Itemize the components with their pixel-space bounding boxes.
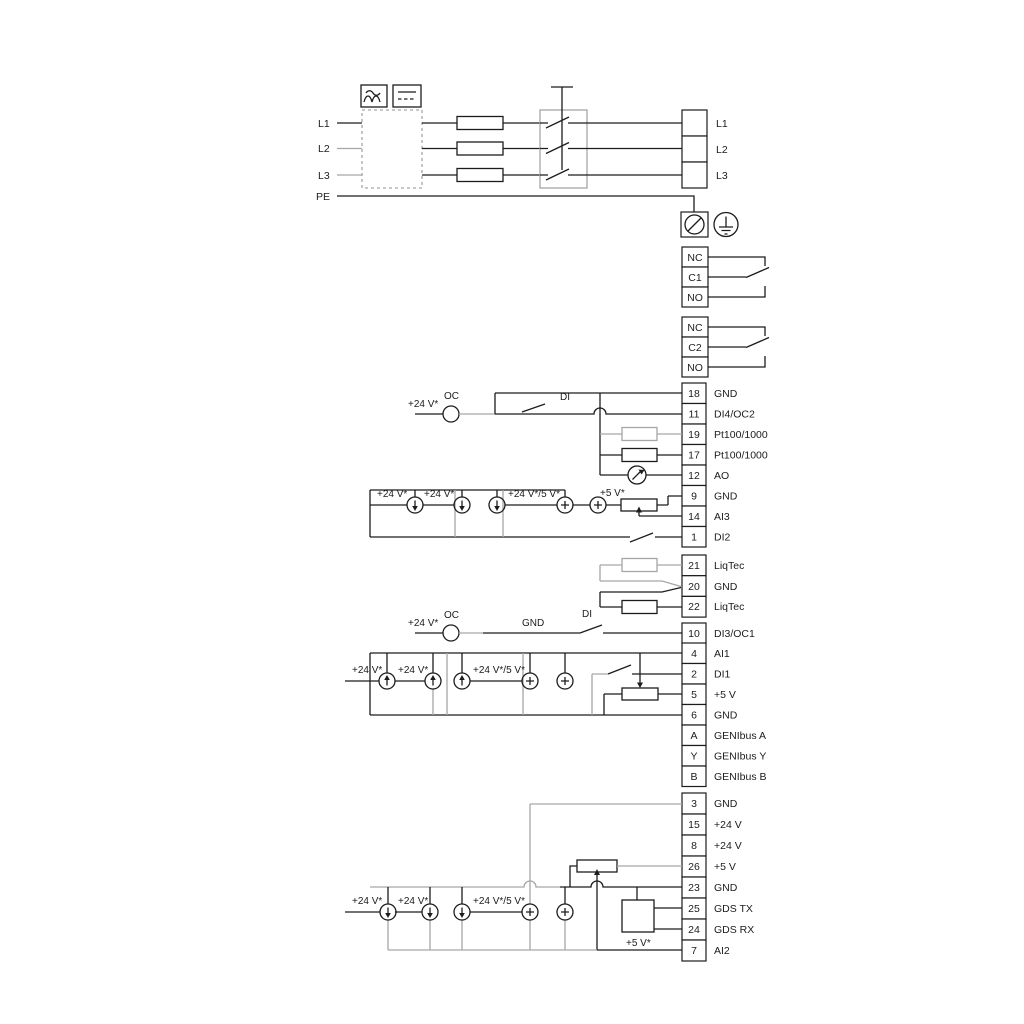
terminal-label: GDS RX [714, 924, 754, 936]
potentiometer-ai1 [622, 688, 658, 700]
v5-label: +5 V* [626, 938, 651, 949]
pt100-sensor-2 [622, 449, 657, 462]
terminal-label: AO [714, 470, 729, 482]
terminal-number: Y [690, 751, 697, 763]
terminal-number: 5 [691, 689, 697, 701]
voltage-source-icon [522, 904, 538, 920]
terminal-number: 26 [688, 861, 700, 873]
di-switch-contact [522, 404, 545, 412]
ac-symbol-box [361, 85, 387, 107]
oc-label: OC [444, 391, 459, 402]
strip3-wiring: +24 V* +24 V* +24 V*/5 V* [345, 653, 682, 715]
wire [708, 327, 765, 336]
terminal-number: 7 [691, 945, 697, 957]
dc-symbol-box [393, 85, 421, 107]
wire [503, 123, 540, 175]
oc-contact-icon [443, 406, 459, 422]
mains-input-section: L1 L2 L3 PE [316, 85, 738, 237]
power-terminal-block: L1 L2 L3 [682, 110, 728, 188]
terminal-label: LiqTec [714, 560, 744, 572]
wiring-diagram: L1 L2 L3 PE [0, 0, 1024, 1024]
terminal-cell [682, 110, 707, 136]
terminal-number: 21 [688, 560, 700, 572]
terminal-label: GDS TX [714, 903, 753, 915]
terminal-strip-3: 4 2 5 6 A Y B AI1 DI1 +5 V GND GENIbus A… [682, 643, 767, 787]
terminal-number: 9 [691, 491, 697, 503]
terminal-number: 23 [688, 882, 700, 894]
mains-l2-label: L2 [318, 143, 330, 155]
voltage-source-icon [557, 497, 573, 513]
relay2-c: C2 [688, 342, 702, 354]
gnd-label: GND [522, 618, 544, 629]
relay2-nc: NC [687, 322, 703, 334]
terminal-label: GND [714, 798, 738, 810]
strip1-wiring: +24 V* OC DI +5 V* +24 V [370, 391, 682, 542]
terminal-number: 6 [691, 710, 697, 722]
terminal-label: AI1 [714, 648, 730, 660]
v24-5v-label: +24 V*/5 V* [508, 489, 560, 500]
v24-label: +24 V* [424, 489, 454, 500]
liqtec-strip: 21 20 22 LiqTec GND LiqTec [600, 555, 744, 617]
mains-l1-label: L1 [318, 118, 330, 130]
relay2-no: NO [687, 362, 703, 374]
terminal-label: DI4/OC2 [714, 409, 755, 421]
di-label: DI [582, 609, 592, 620]
relay1-block: NC C1 NO [682, 247, 769, 307]
current-source-up-icon [454, 673, 470, 689]
terminal-label: AI3 [714, 511, 730, 523]
terminal-number: 20 [688, 581, 700, 593]
terminal-number: 11 [689, 409, 700, 421]
wire [370, 653, 682, 715]
fuse-l3 [457, 169, 503, 182]
v24-label: +24 V* [352, 665, 382, 676]
relay1-contact [708, 268, 769, 278]
terminal-label: +24 V [714, 840, 742, 852]
v5-label: +5 V* [600, 488, 625, 499]
terminal-strip-4: 3 15 8 26 23 25 24 7 GND +24 V +24 V +5 … [682, 793, 754, 961]
di-label: DI [560, 392, 570, 403]
terminal-label: GENIbus Y [714, 751, 766, 763]
relay2-block: NC C2 NO [682, 317, 769, 377]
terminal-number: 14 [688, 511, 700, 523]
current-source-icon [407, 497, 423, 513]
current-source-up-icon [425, 673, 441, 689]
terminal-number: 25 [688, 903, 700, 915]
terminal-number: 22 [688, 601, 700, 613]
relay2-contact [708, 338, 769, 348]
liqtec-sensor-2 [622, 601, 657, 614]
terminal-label: AI2 [714, 945, 730, 957]
terminal-strip-1: 18 11 19 17 12 9 14 1 GND DI4/OC2 Pt100/… [682, 383, 768, 547]
relay1-c: C1 [688, 272, 702, 284]
terminal-label: GND [714, 710, 738, 722]
terminal-number: 10 [688, 628, 700, 640]
terminal-label: L2 [716, 144, 728, 156]
terminal-number: 15 [688, 819, 700, 831]
current-source-up-icon [379, 673, 395, 689]
v24-label: +24 V* [377, 489, 407, 500]
current-source-icon [454, 497, 470, 513]
liqtec-sensor-1 [622, 559, 657, 572]
filter-dashed-box [362, 110, 422, 188]
terminal-label: L1 [716, 118, 728, 130]
terminal-label: DI3/OC1 [714, 628, 755, 640]
pot-wiper-arrow-down [637, 683, 643, 689]
wiring-diagram-page: L1 L2 L3 PE [0, 0, 1024, 1024]
relay1-nc: NC [687, 252, 703, 264]
wire [708, 286, 765, 297]
terminal-cell [682, 136, 707, 162]
terminal-number: 17 [688, 450, 700, 462]
current-source-icon [380, 904, 396, 920]
current-source-icon [422, 904, 438, 920]
terminal-number: 12 [688, 470, 700, 482]
terminal-label: +5 V [714, 861, 736, 873]
voltage-source-icon [522, 673, 538, 689]
terminal-label: GND [714, 882, 738, 894]
terminal-number: 4 [691, 648, 697, 660]
terminal-label: Pt100/1000 [714, 429, 768, 441]
v24-label: +24 V* [398, 896, 428, 907]
voltage-source-icon [557, 904, 573, 920]
oc-label: OC [444, 610, 459, 621]
di-box [495, 393, 682, 414]
terminal-number: 1 [691, 532, 697, 544]
v24-5v-label: +24 V*/5 V* [473, 896, 525, 907]
terminal-label: GND [714, 581, 738, 593]
v24-label: +24 V* [398, 665, 428, 676]
terminal-number: 8 [691, 840, 697, 852]
wire [708, 356, 765, 367]
v24-label: +24 V* [408, 618, 438, 629]
current-source-icon [454, 904, 470, 920]
wire-hop [560, 881, 682, 887]
mains-l3-label: L3 [318, 170, 330, 182]
terminal-number: B [690, 771, 697, 783]
gds-sensor-box [622, 900, 654, 932]
terminal-label: L3 [716, 170, 728, 182]
fuse-l1 [457, 117, 503, 130]
terminal-label: +24 V [714, 819, 742, 831]
wire [388, 920, 565, 950]
option-divider [447, 653, 523, 715]
relay1-no: NO [687, 292, 703, 304]
terminal-label: GENIbus A [714, 730, 766, 742]
di-switch-contact [483, 625, 682, 633]
terminal-number: 19 [688, 429, 700, 441]
oc-contact-icon [443, 625, 459, 641]
voltage-source-icon [557, 673, 573, 689]
terminal-label: DI2 [714, 532, 731, 544]
terminal-label: Pt100/1000 [714, 450, 768, 462]
terminal-label: GND [714, 491, 738, 503]
fuse-l2 [457, 142, 503, 155]
terminal-label: GENIbus B [714, 771, 767, 783]
wire-hop [370, 881, 560, 887]
terminal-label: LiqTec [714, 601, 744, 613]
di1-switch-contact [608, 665, 682, 674]
wire-pe [337, 196, 694, 212]
meter-needle [633, 471, 642, 480]
terminal-number: 18 [688, 388, 700, 400]
v24-5v-label: +24 V*/5 V* [473, 665, 525, 676]
earth-glyph [719, 217, 733, 235]
terminal-number: 24 [688, 924, 700, 936]
strip4-wiring: +5 V* +24 V* +24 V* +24 V*/5 V* [345, 804, 682, 950]
terminal-number: A [690, 730, 697, 742]
pt100-sensor-1 [622, 428, 657, 441]
plus-glyph [594, 501, 602, 509]
mains-pe-label: PE [316, 191, 330, 203]
wire [422, 123, 457, 175]
terminal-number: 2 [691, 669, 697, 681]
terminal-label: GND [714, 388, 738, 400]
terminal-cell [682, 162, 707, 188]
wire [570, 866, 577, 887]
terminal-label: +5 V [714, 689, 736, 701]
v24-label: +24 V* [408, 399, 438, 410]
wire [587, 123, 682, 175]
v24-label: +24 V* [352, 896, 382, 907]
terminal-label: DI1 [714, 669, 731, 681]
terminal-number: 3 [691, 798, 697, 810]
wire [530, 804, 682, 904]
wire [708, 257, 765, 266]
